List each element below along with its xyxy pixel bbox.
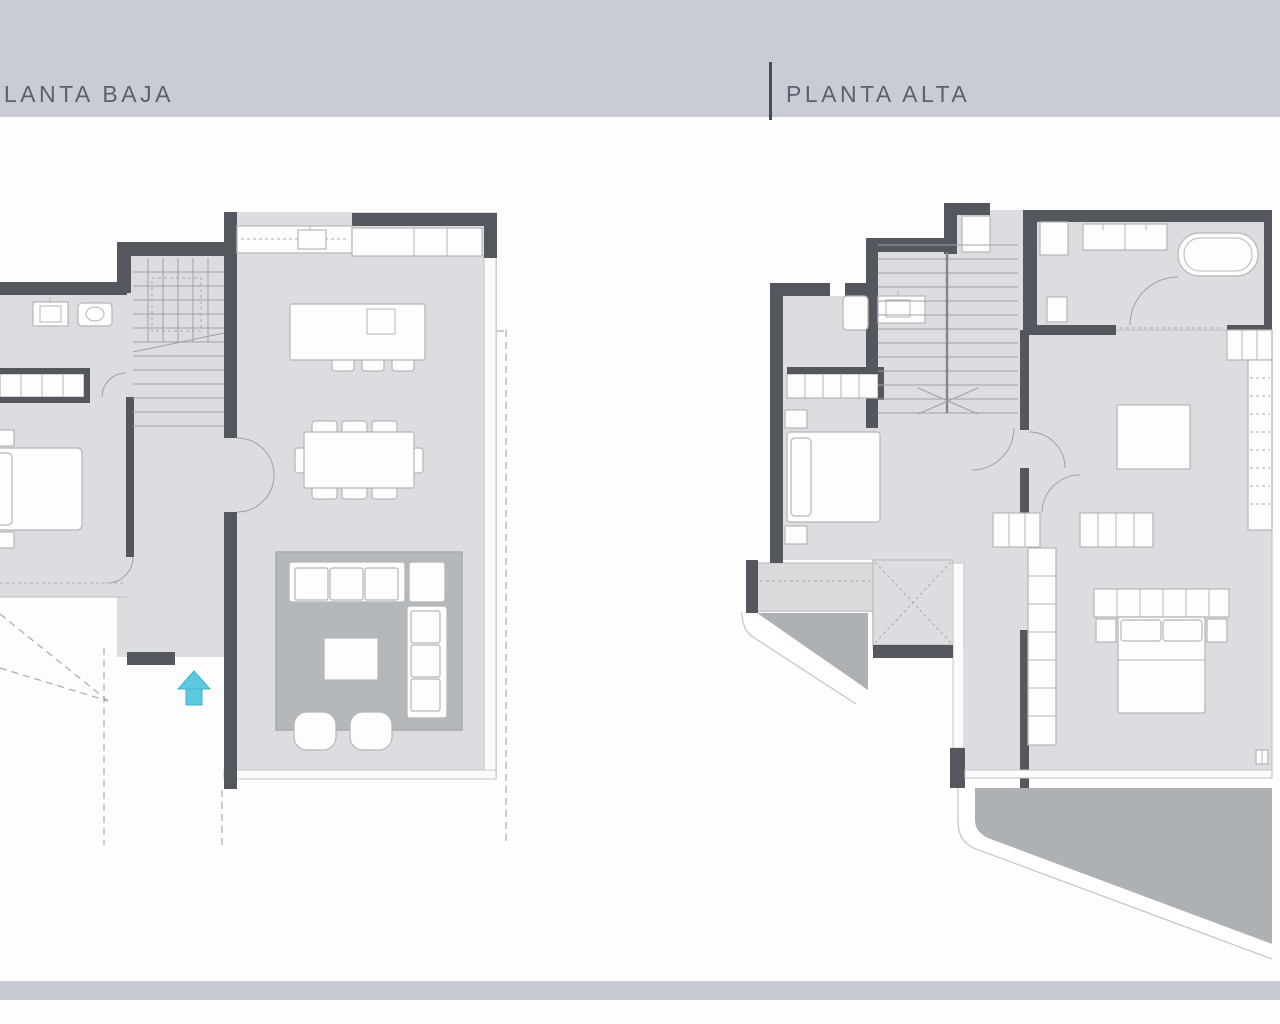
balcony-terrace [742,610,868,704]
wall [117,242,224,256]
closet-floor [872,560,965,650]
wall [1020,330,1029,430]
wall [352,213,497,226]
window-band-bottom [224,770,496,779]
cooktop [298,230,326,249]
wall [224,512,237,789]
wall [770,283,783,563]
kitchen-counter [237,226,482,256]
window-band-bottom [965,770,1272,778]
pouf [294,712,336,750]
wall [746,560,758,613]
pouf [350,712,392,750]
wall [950,748,965,788]
wall [770,283,830,296]
wall [1023,210,1272,222]
wall [866,238,878,428]
wall [873,645,953,658]
main-terrace [958,788,1272,959]
pillow [1163,620,1202,641]
toilet [843,296,868,330]
bathtub [1178,233,1258,276]
nightstand [0,532,14,548]
left-closet-column [1028,548,1056,745]
pillow [0,453,12,525]
nightstand [1207,619,1227,642]
cabinet [962,216,990,252]
window-band [953,563,964,748]
wall [944,203,990,215]
wall [1023,210,1037,330]
door-symbol [1256,750,1268,764]
wall [126,397,134,557]
pillow [791,438,811,516]
wall [224,212,237,438]
window-band-right [484,255,496,776]
desk [1117,405,1190,469]
toilet [1047,297,1067,322]
nightstand [785,526,807,544]
wall [127,652,175,665]
nightstand [1096,619,1116,642]
coffee-table [324,638,378,680]
wardrobe [787,367,884,400]
wall [0,282,127,295]
pillow [1121,620,1161,641]
dresser [1094,589,1229,617]
bed [0,430,82,548]
floor-plan-sheet [0,0,1280,1024]
wall [484,213,497,258]
nightstand [0,430,14,446]
toilet [78,303,112,326]
wall [1264,210,1272,332]
wall [1028,325,1116,335]
cabinet [1040,222,1068,255]
wardrobe [0,368,90,403]
dashed-line [0,668,108,701]
balcony-floor [757,563,873,612]
bedroom-floor [0,282,127,597]
floor-plan-planta-alta [742,203,1272,959]
living-room [276,552,462,750]
dashed-line [0,614,108,701]
entrance-up-arrow-icon [178,671,210,705]
double-sink [1083,224,1167,250]
nightstand [785,410,807,428]
dining-table [295,421,423,499]
floor-plan-planta-baja [0,212,506,845]
